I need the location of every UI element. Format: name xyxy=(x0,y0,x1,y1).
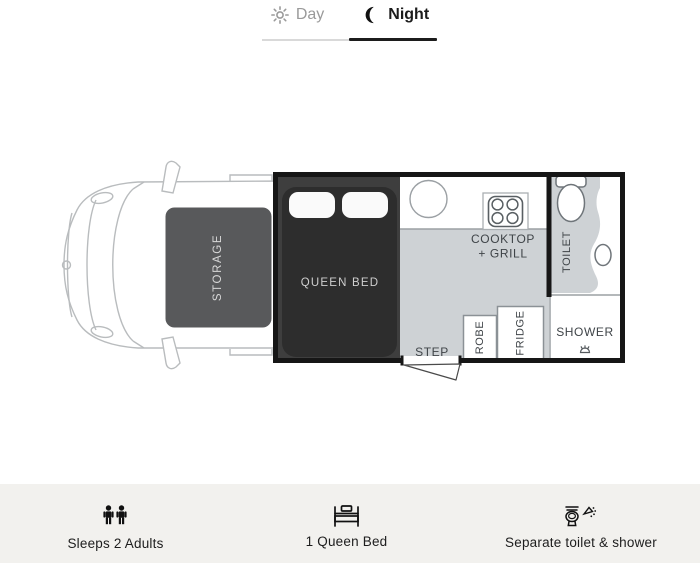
cooktop-label-line2: + GRILL xyxy=(478,247,527,261)
storage-label: STORAGE xyxy=(212,234,224,301)
pillow-right xyxy=(342,192,388,218)
entry-door xyxy=(404,364,460,380)
toilet-label: TOILET xyxy=(561,231,573,273)
feature-bar: Sleeps 2 Adults 1 Queen Bed xyxy=(0,484,700,563)
bed-area: QUEEN BED xyxy=(275,174,400,360)
cooktop-label-line1: COOKTOP xyxy=(471,232,535,246)
fridge-cabinet: FRIDGE xyxy=(498,307,544,360)
toilet-bowl xyxy=(558,185,585,222)
pillow-left xyxy=(289,192,335,218)
feature-bathroom: Separate toilet & shower xyxy=(505,505,657,550)
bathroom-basin xyxy=(595,245,611,266)
robe-label: ROBE xyxy=(474,321,486,355)
fridge-label: FRIDGE xyxy=(514,310,526,355)
toilet-shower-icon xyxy=(564,505,597,529)
bed-icon xyxy=(333,505,360,528)
tab-underline-active[interactable] xyxy=(349,38,437,41)
feature-sleeps: Sleeps 2 Adults xyxy=(67,505,163,551)
tab-night-label: Night xyxy=(388,6,429,24)
sun-icon xyxy=(271,6,289,24)
tab-night[interactable]: Night xyxy=(358,3,433,27)
tab-underline-inactive[interactable] xyxy=(262,39,349,41)
floorplan: STORAGE QUEEN BED COOKT xyxy=(55,148,640,395)
tab-day[interactable]: Day xyxy=(267,3,328,27)
tab-day-label: Day xyxy=(296,6,324,24)
moon-icon xyxy=(362,5,381,25)
queen-bed-label: QUEEN BED xyxy=(301,277,380,289)
kitchen-sink xyxy=(410,181,447,218)
floorplan-svg: STORAGE QUEEN BED COOKT xyxy=(55,148,640,395)
feature-bathroom-label: Separate toilet & shower xyxy=(505,535,657,550)
page: Day Night xyxy=(0,0,700,563)
view-tabs: Day Night xyxy=(0,3,700,27)
feature-sleeps-label: Sleeps 2 Adults xyxy=(67,536,163,551)
feature-bed: 1 Queen Bed xyxy=(306,505,388,549)
feature-bed-label: 1 Queen Bed xyxy=(306,534,388,549)
people-icon xyxy=(100,505,130,530)
tab-underline xyxy=(262,38,437,41)
shower-label: SHOWER xyxy=(556,325,614,339)
cooktop xyxy=(483,193,528,230)
robe-cabinet: ROBE xyxy=(464,316,497,360)
storage-box: STORAGE xyxy=(166,208,272,328)
